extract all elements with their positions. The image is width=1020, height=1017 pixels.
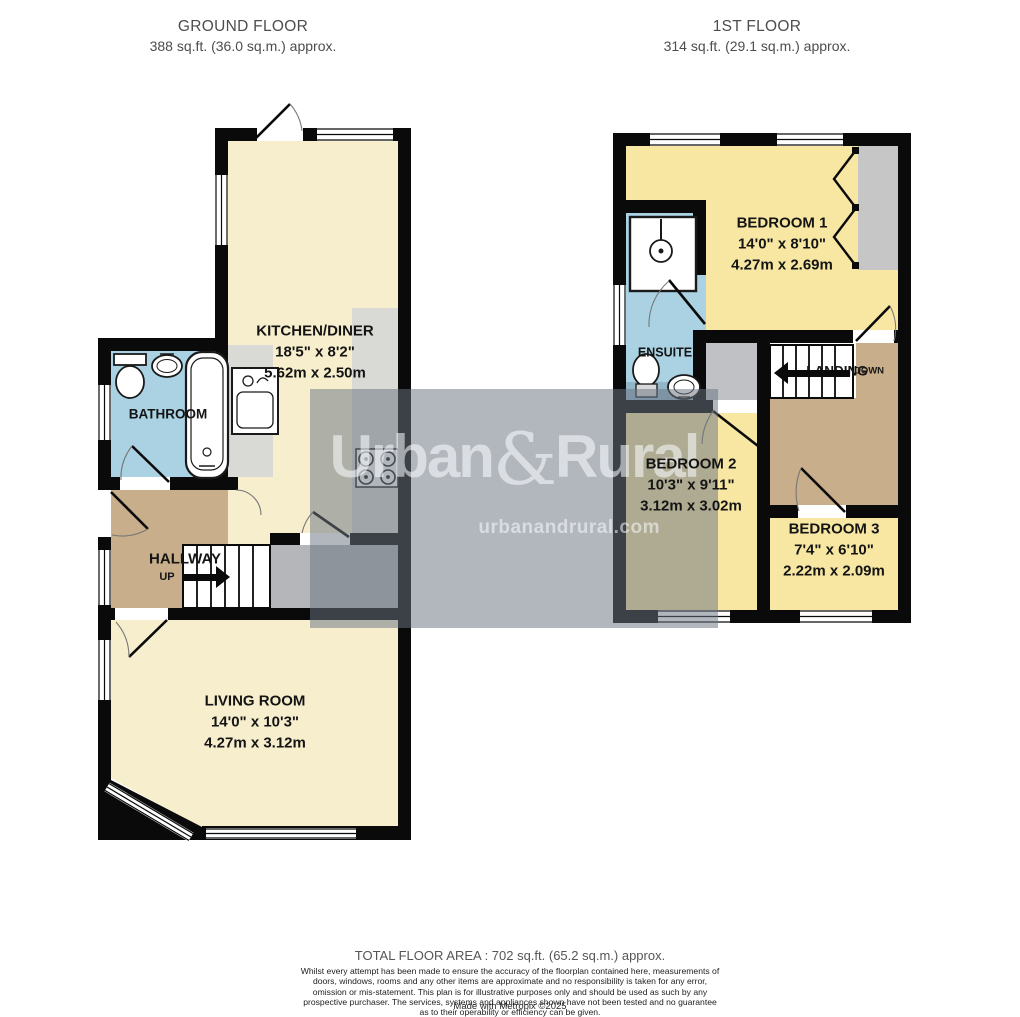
wall-segment (98, 338, 228, 351)
metropix-credit: Made with Metropix ©2025 (0, 1001, 1020, 1012)
shower (630, 217, 696, 291)
room-size-imperial: 14'0" x 8'10" (731, 234, 833, 255)
first-floor-title: 1ST FLOOR (557, 18, 957, 36)
room-name: BEDROOM 2 (640, 454, 742, 475)
window (650, 133, 720, 146)
bay-window-front (206, 828, 356, 839)
window (777, 133, 843, 146)
bathroom-label: BATHROOM (129, 404, 208, 425)
room-size-imperial: 7'4" x 6'10" (783, 540, 885, 561)
kitchen-label: KITCHEN/DINER 18'5" x 8'2" 5.62m x 2.50m (256, 321, 374, 384)
door-gap (98, 490, 111, 537)
living-room-label: LIVING ROOM 14'0" x 10'3" 4.27m x 3.12m (204, 691, 306, 754)
ground-floor-title: GROUND FLOOR (43, 18, 443, 36)
total-floor-area: TOTAL FLOOR AREA : 702 sq.ft. (65.2 sq.m… (0, 948, 1020, 963)
room-name: ENSUITE (638, 343, 692, 364)
room-size-imperial: 10'3" x 9'11" (640, 475, 742, 496)
ground-floor-area: 388 sq.ft. (36.0 sq.m.) approx. (43, 38, 443, 54)
first-floor-header: 1ST FLOOR 314 sq.ft. (29.1 sq.m.) approx… (557, 18, 957, 54)
watermark-website: urbanandrural.com (478, 517, 660, 539)
ground-floor-header: GROUND FLOOR 388 sq.ft. (36.0 sq.m.) app… (43, 18, 443, 54)
ensuite-label: ENSUITE (638, 343, 692, 364)
window (215, 175, 228, 245)
wall-segment (613, 200, 706, 213)
room-name: KITCHEN/DINER (256, 321, 374, 342)
bathroom-toilet (114, 354, 146, 398)
first-floor-area: 314 sq.ft. (29.1 sq.m.) approx. (557, 38, 957, 54)
window (613, 285, 626, 345)
window (98, 640, 111, 700)
room-size-metric: 2.22m x 2.09m (783, 561, 885, 582)
room-name: BATHROOM (129, 404, 208, 425)
door-gap (120, 477, 170, 490)
hallway-floor-upper (111, 490, 228, 545)
stairs-down-arrow (774, 362, 852, 384)
down-label: DOWN (854, 366, 884, 377)
room-size-metric: 5.62m x 2.50m (256, 363, 374, 384)
room-size-metric: 3.12m x 3.02m (640, 496, 742, 517)
window (800, 610, 872, 623)
up-label: UP (159, 571, 174, 583)
floorplan-page: { "headers": { "ground_floor": { "title"… (0, 0, 1020, 1017)
door-gap (115, 608, 168, 620)
bathroom-sink (152, 354, 182, 377)
room-size-imperial: 18'5" x 8'2" (256, 342, 374, 363)
bedroom1-wardrobe (858, 146, 898, 270)
room-size-metric: 4.27m x 2.69m (731, 255, 833, 276)
wall-segment (898, 133, 911, 623)
wall-segment (757, 343, 770, 623)
bedroom1-label: BEDROOM 1 14'0" x 8'10" 4.27m x 2.69m (731, 213, 833, 276)
window (98, 550, 111, 605)
bedroom3-label: BEDROOM 3 7'4" x 6'10" 2.22m x 2.09m (783, 519, 885, 582)
window (317, 128, 393, 141)
door-gap (713, 400, 757, 413)
window (98, 385, 111, 440)
landing-floor-lower (770, 398, 856, 518)
bedroom2-label: BEDROOM 2 10'3" x 9'11" 3.12m x 3.02m (640, 454, 742, 517)
room-size-imperial: 14'0" x 10'3" (204, 712, 306, 733)
door-arc (290, 104, 302, 131)
watermark-ampersand: & (493, 417, 555, 501)
room-name: BEDROOM 3 (783, 519, 885, 540)
room-name: BEDROOM 1 (731, 213, 833, 234)
room-name: LIVING ROOM (204, 691, 306, 712)
room-size-metric: 4.27m x 3.12m (204, 733, 306, 754)
stairs-up-arrow (183, 566, 230, 588)
